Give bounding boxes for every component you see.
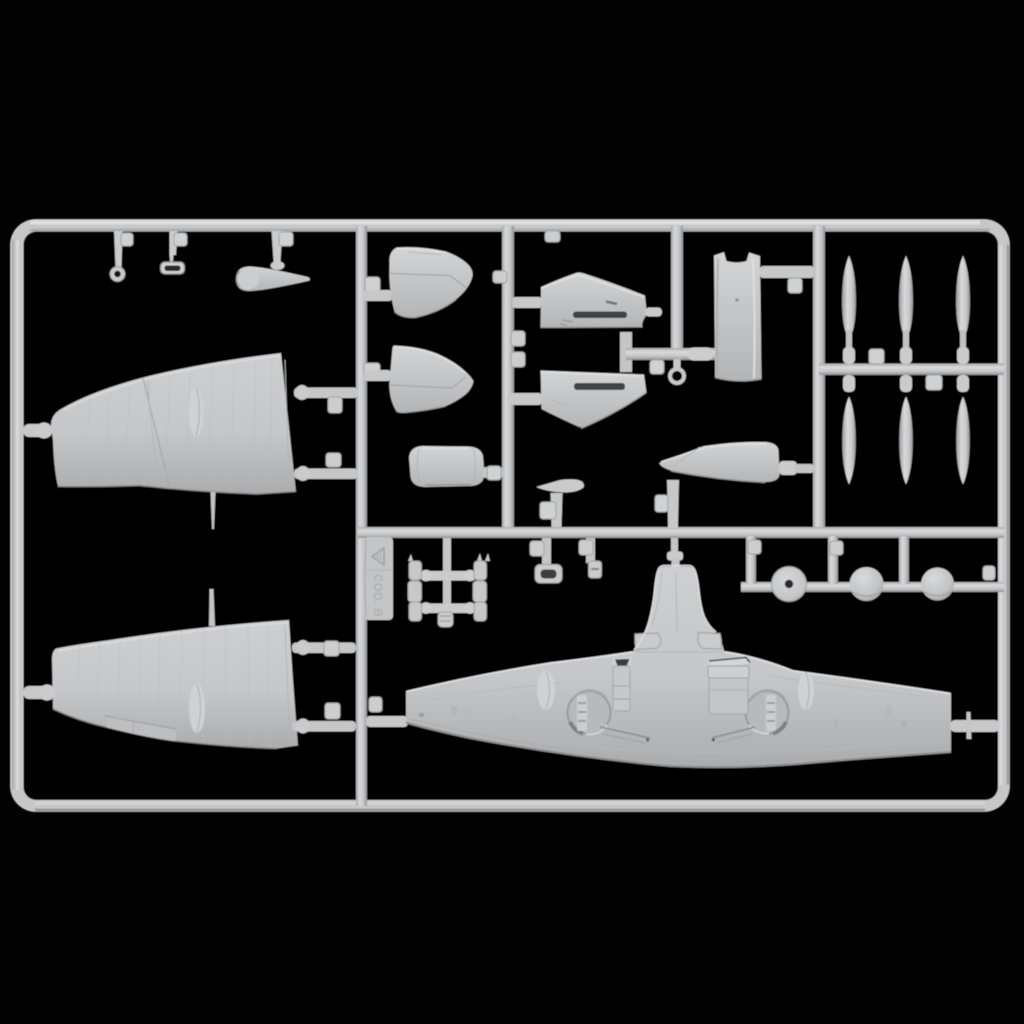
svg-text:COD. B: COD. B [371, 574, 383, 617]
